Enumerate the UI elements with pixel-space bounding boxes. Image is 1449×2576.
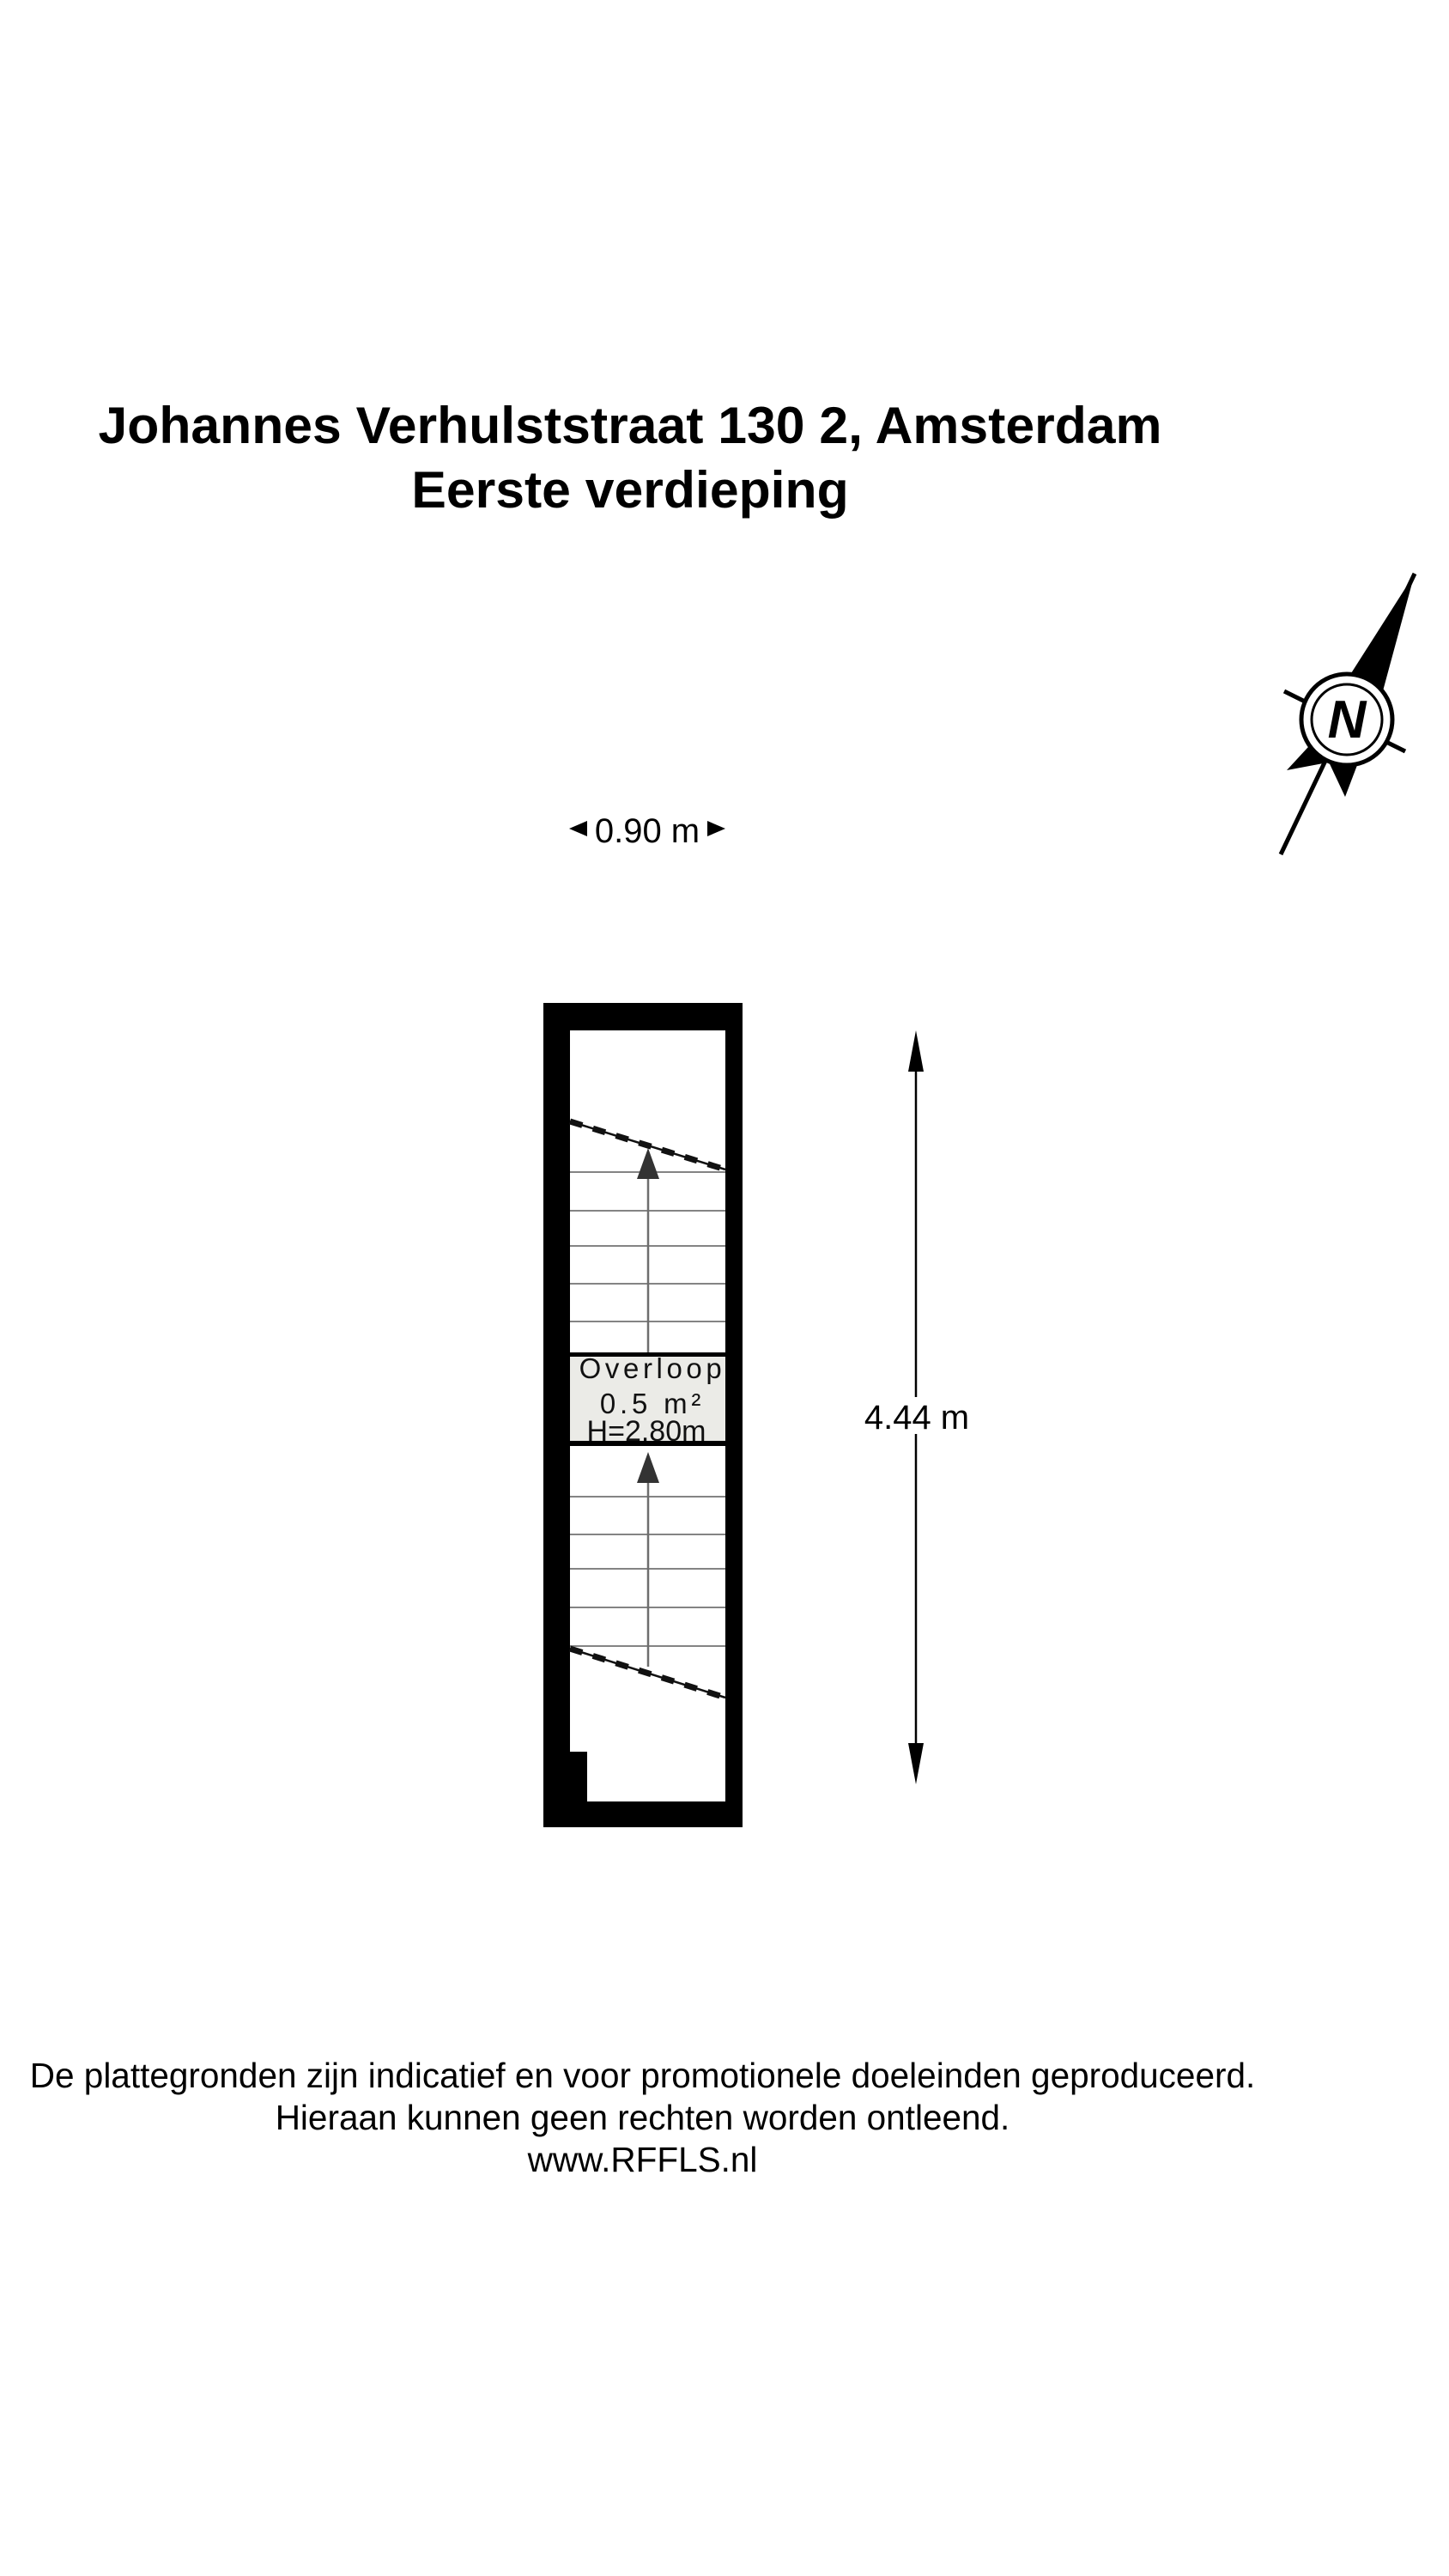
svg-text:N: N [1328, 690, 1367, 750]
svg-text:Overloop: Overloop [579, 1352, 726, 1384]
svg-text:H=2.80m: H=2.80m [587, 1415, 706, 1448]
svg-text:0.90 m: 0.90 m [595, 812, 700, 850]
svg-text:4.44 m: 4.44 m [864, 1399, 969, 1437]
